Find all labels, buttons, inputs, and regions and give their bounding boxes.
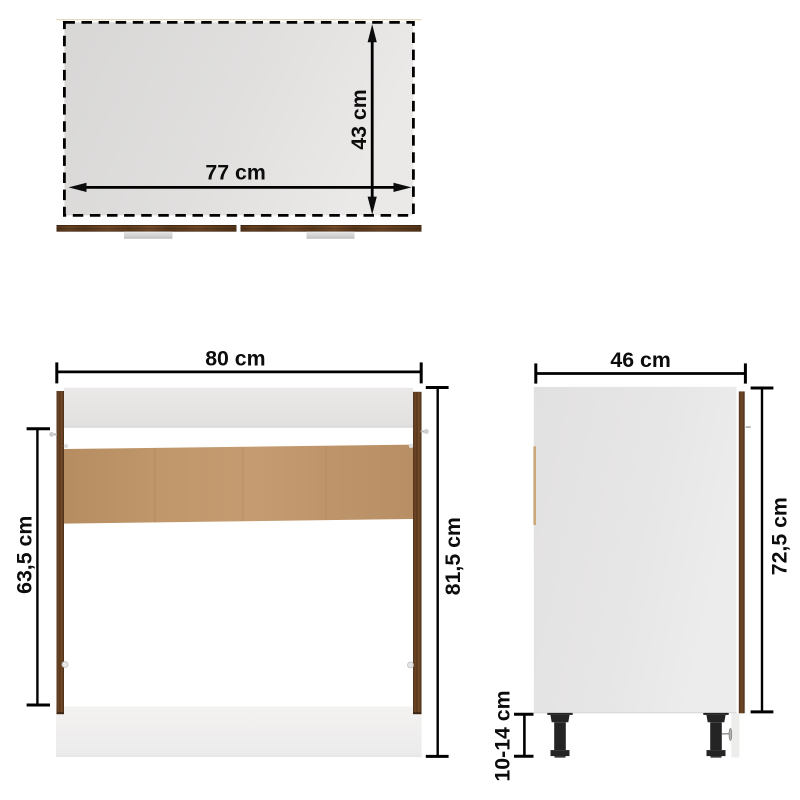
svg-text:72,5 cm: 72,5 cm [767, 497, 791, 575]
svg-text:81,5 cm: 81,5 cm [441, 517, 465, 595]
svg-text:80 cm: 80 cm [205, 347, 265, 371]
svg-text:63,5 cm: 63,5 cm [12, 516, 36, 594]
svg-text:46 cm: 46 cm [610, 348, 670, 372]
svg-text:43 cm: 43 cm [347, 89, 371, 149]
svg-text:77 cm: 77 cm [205, 161, 265, 185]
svg-text:10-14 cm: 10-14 cm [490, 690, 514, 781]
